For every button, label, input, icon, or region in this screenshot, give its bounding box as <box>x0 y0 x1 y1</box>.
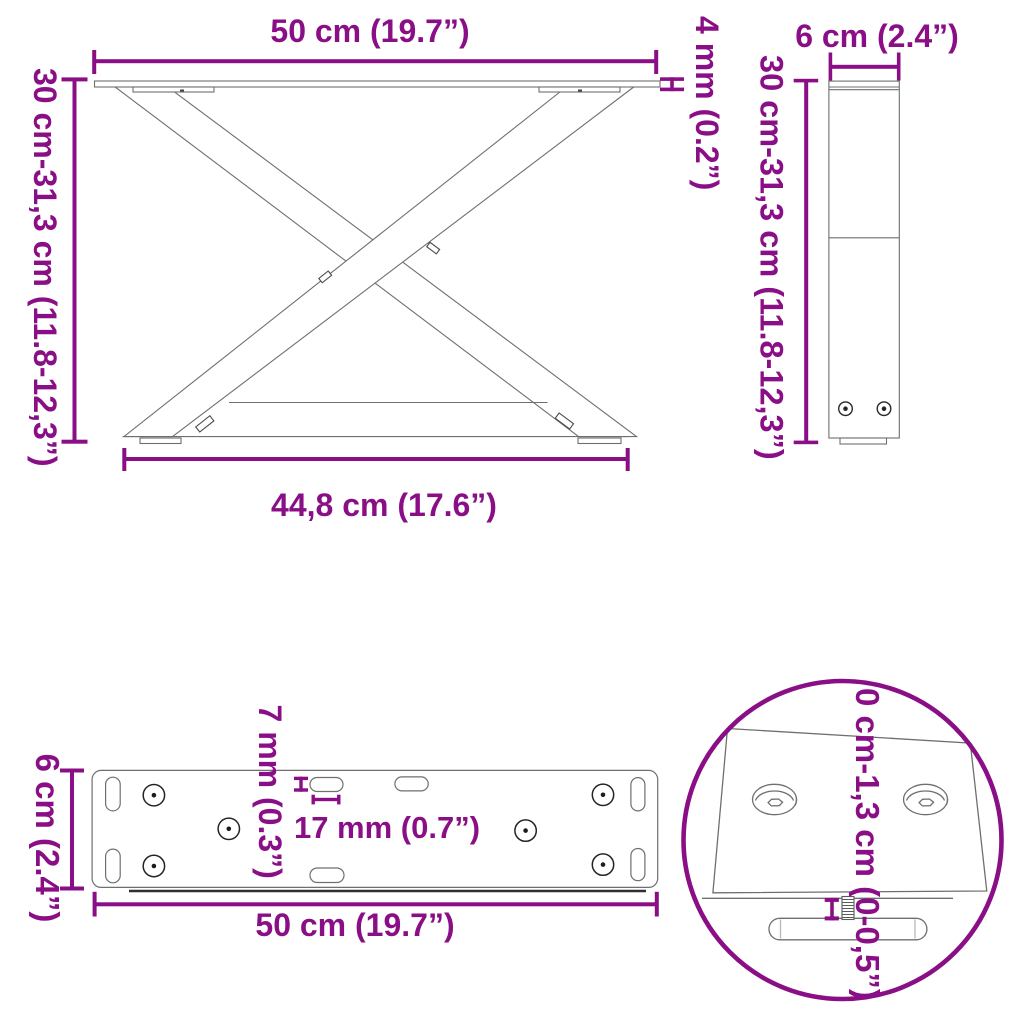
svg-text:6 cm (2.4”): 6 cm (2.4”) <box>29 754 66 923</box>
svg-text:44,8 cm (17.6”): 44,8 cm (17.6”) <box>271 487 497 523</box>
svg-text:30 cm-31,3 cm (11.8-12,3”): 30 cm-31,3 cm (11.8-12,3”) <box>753 55 789 460</box>
svg-text:7 mm (0.3”): 7 mm (0.3”) <box>252 705 288 879</box>
svg-text:0 cm-1,3 cm (0-0,5”): 0 cm-1,3 cm (0-0,5”) <box>849 688 886 1000</box>
svg-text:4 mm (0.2”): 4 mm (0.2”) <box>689 16 725 190</box>
svg-text:6 cm (2.4”): 6 cm (2.4”) <box>795 18 959 54</box>
svg-text:50 cm (19.7”): 50 cm (19.7”) <box>270 13 469 49</box>
svg-text:50 cm (19.7”): 50 cm (19.7”) <box>255 907 454 943</box>
svg-text:17 mm (0.7”): 17 mm (0.7”) <box>294 810 480 845</box>
svg-text:30 cm-31,3 cm (11.8-12,3”): 30 cm-31,3 cm (11.8-12,3”) <box>27 68 63 466</box>
